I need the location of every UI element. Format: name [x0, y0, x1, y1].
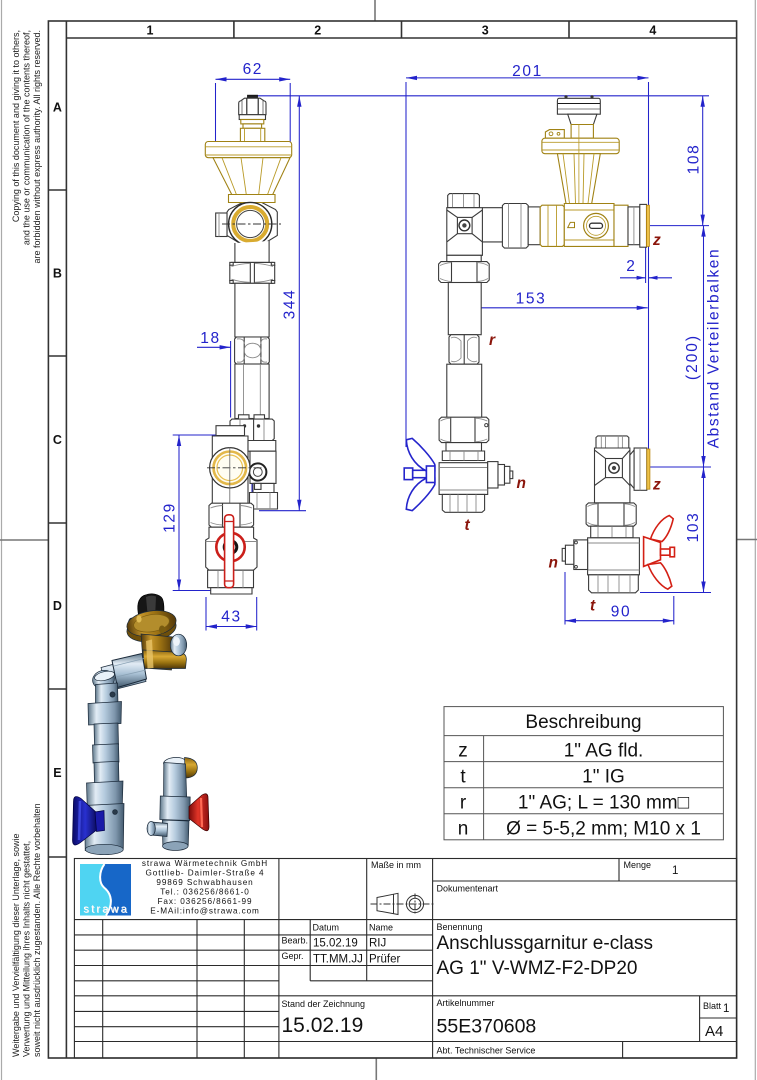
svg-text:1: 1	[672, 865, 678, 877]
svg-text:90: 90	[611, 604, 631, 621]
svg-text:Benennung: Benennung	[437, 922, 483, 932]
svg-text:C: C	[53, 433, 62, 447]
svg-text:A: A	[53, 101, 62, 115]
svg-text:D: D	[53, 599, 62, 613]
svg-text:Stand der Zeichnung: Stand der Zeichnung	[282, 999, 366, 1009]
svg-text:and the use or communication o: and the use or communication of the cont…	[22, 30, 32, 245]
svg-text:t: t	[465, 517, 471, 534]
svg-text:2: 2	[626, 258, 635, 275]
svg-text:t: t	[590, 598, 596, 615]
svg-text:201: 201	[512, 63, 543, 80]
svg-text:TT.MM.JJ: TT.MM.JJ	[313, 954, 363, 966]
svg-text:z: z	[652, 232, 661, 249]
svg-text:r: r	[460, 793, 467, 814]
svg-text:z: z	[652, 477, 661, 494]
svg-text:n: n	[458, 819, 469, 840]
svg-text:344: 344	[282, 289, 299, 320]
svg-text:n: n	[549, 555, 558, 572]
svg-text:strawa: strawa	[83, 903, 129, 915]
svg-text:Name: Name	[369, 923, 393, 933]
svg-text:Verwertung und Mitteilung ihre: Verwertung und Mitteilung ihres Inhalts …	[22, 841, 32, 1057]
svg-text:1" AG fld.: 1" AG fld.	[564, 741, 644, 762]
svg-text:55E370608: 55E370608	[437, 1016, 537, 1038]
svg-text:Artikelnummer: Artikelnummer	[437, 998, 495, 1008]
svg-text:99869 Schwabhausen: 99869 Schwabhausen	[156, 878, 253, 887]
svg-text:Gottlieb- Daimler-Straße 4: Gottlieb- Daimler-Straße 4	[146, 869, 265, 878]
svg-text:1" IG: 1" IG	[582, 767, 625, 788]
svg-text:1: 1	[723, 1003, 729, 1015]
svg-text:15.02.19: 15.02.19	[282, 1014, 364, 1037]
svg-text:Anschlussgarnitur e-class: Anschlussgarnitur e-class	[437, 933, 653, 954]
svg-text:Tel.: 036256/8661-0: Tel.: 036256/8661-0	[160, 888, 249, 897]
svg-text:AG 1" V-WMZ-F2-DP20: AG 1" V-WMZ-F2-DP20	[437, 958, 638, 979]
svg-text:18: 18	[200, 330, 220, 347]
svg-text:strawa Wärmetechnik GmbH: strawa Wärmetechnik GmbH	[142, 859, 268, 868]
svg-text:Fax: 036256/8661-99: Fax: 036256/8661-99	[158, 897, 253, 906]
svg-text:2: 2	[314, 24, 321, 38]
svg-text:3: 3	[482, 24, 489, 38]
svg-text:Prüfer: Prüfer	[369, 954, 400, 966]
svg-text:15.02.19: 15.02.19	[313, 938, 358, 950]
svg-text:4: 4	[649, 24, 656, 38]
svg-text:Blatt: Blatt	[703, 1001, 722, 1011]
svg-text:E-MAil:info@strawa.com: E-MAil:info@strawa.com	[150, 907, 260, 916]
svg-text:Weitergabe und Vervielfältigun: Weitergabe und Vervielfältigung dieser U…	[11, 834, 21, 1057]
svg-text:129: 129	[162, 502, 179, 533]
svg-text:62: 62	[243, 61, 263, 78]
svg-text:Beschreibung: Beschreibung	[525, 712, 641, 733]
svg-text:are forbidden without express: are forbidden without express authority.…	[32, 30, 42, 263]
svg-text:B: B	[53, 267, 62, 281]
svg-text:Datum: Datum	[313, 923, 340, 933]
svg-text:1" AG; L = 130 mm□: 1" AG; L = 130 mm□	[518, 793, 690, 814]
svg-text:Gepr.: Gepr.	[282, 951, 304, 961]
svg-text:n: n	[517, 475, 526, 492]
svg-text:A4: A4	[705, 1023, 723, 1040]
svg-text:(200): (200)	[684, 334, 701, 380]
svg-text:103: 103	[685, 512, 702, 543]
svg-text:Bearb.: Bearb.	[282, 936, 309, 946]
svg-text:Ø = 5-5,2 mm; M10 x 1: Ø = 5-5,2 mm; M10 x 1	[506, 819, 701, 840]
svg-text:z: z	[458, 741, 468, 762]
svg-text:r: r	[489, 332, 496, 349]
svg-text:1: 1	[147, 24, 154, 38]
svg-text:Menge: Menge	[624, 860, 652, 870]
svg-text:RIJ: RIJ	[369, 938, 386, 950]
svg-text:Dokumentenart: Dokumentenart	[437, 884, 499, 894]
svg-text:Abstand Verteilerbalken: Abstand Verteilerbalken	[706, 248, 723, 449]
svg-text:Copying of this document and g: Copying of this document and giving it t…	[11, 30, 21, 222]
svg-text:t: t	[460, 767, 466, 788]
svg-text:108: 108	[686, 144, 703, 175]
svg-text:Maße in mm: Maße in mm	[371, 860, 421, 870]
svg-text:153: 153	[516, 291, 547, 308]
svg-text:soweit nicht ausdrücklich zuge: soweit nicht ausdrücklich zugestanden. A…	[32, 803, 42, 1057]
svg-text:Abt. Technischer Service: Abt. Technischer Service	[437, 1046, 536, 1056]
svg-text:43: 43	[221, 609, 241, 626]
svg-text:E: E	[53, 766, 61, 780]
